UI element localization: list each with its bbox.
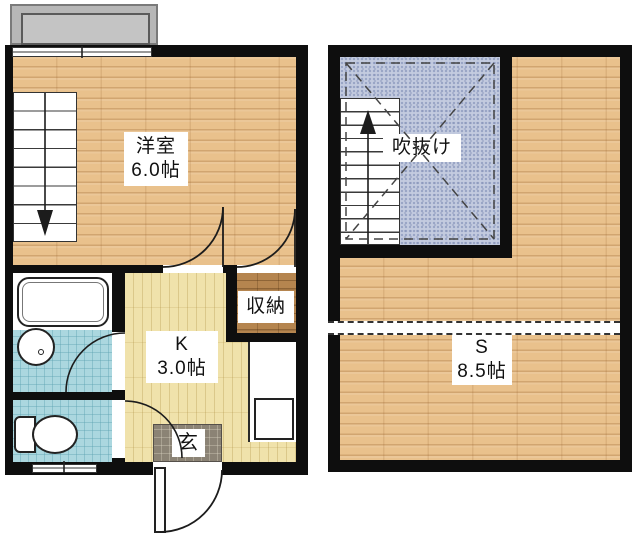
loft-edge-band xyxy=(328,321,620,335)
toilet-window xyxy=(32,464,97,473)
balcony-inner xyxy=(21,13,150,45)
void-wall-east xyxy=(500,57,512,258)
kitchen-label: K 3.0帖 xyxy=(146,331,218,383)
room-label-s: S 8.5帖 xyxy=(452,335,512,385)
bathtub-rim xyxy=(22,282,104,322)
closet-wall-south xyxy=(226,333,296,342)
door-opening-2 xyxy=(237,265,296,273)
entrance-door-leaf xyxy=(154,467,166,533)
toilet-door-gap xyxy=(112,400,125,458)
kitchen-sink xyxy=(254,398,294,440)
washbasin-drain xyxy=(38,349,44,355)
floorplan-canvas: 洋室 6.0帖 K 3.0帖 収納 玄 吹抜け S 8.5帖 xyxy=(0,0,640,541)
stairs-2f xyxy=(340,98,400,245)
inner-wall-toilet-north xyxy=(13,392,112,400)
door-opening-1 xyxy=(163,265,223,273)
void-wall-south xyxy=(340,245,512,258)
closet-label: 収納 xyxy=(238,291,294,323)
void-label: 吹抜け xyxy=(383,134,461,162)
closet-wall-west xyxy=(226,273,237,342)
stairs-1f xyxy=(13,92,77,242)
window-top xyxy=(12,47,152,57)
washbasin xyxy=(17,328,55,366)
toilet-bowl xyxy=(32,415,78,454)
genkan-label: 玄 xyxy=(172,429,205,457)
entrance-door-arc xyxy=(160,470,222,532)
room-label-west: 洋室 6.0帖 xyxy=(124,132,188,186)
washroom-door-gap xyxy=(112,332,125,390)
